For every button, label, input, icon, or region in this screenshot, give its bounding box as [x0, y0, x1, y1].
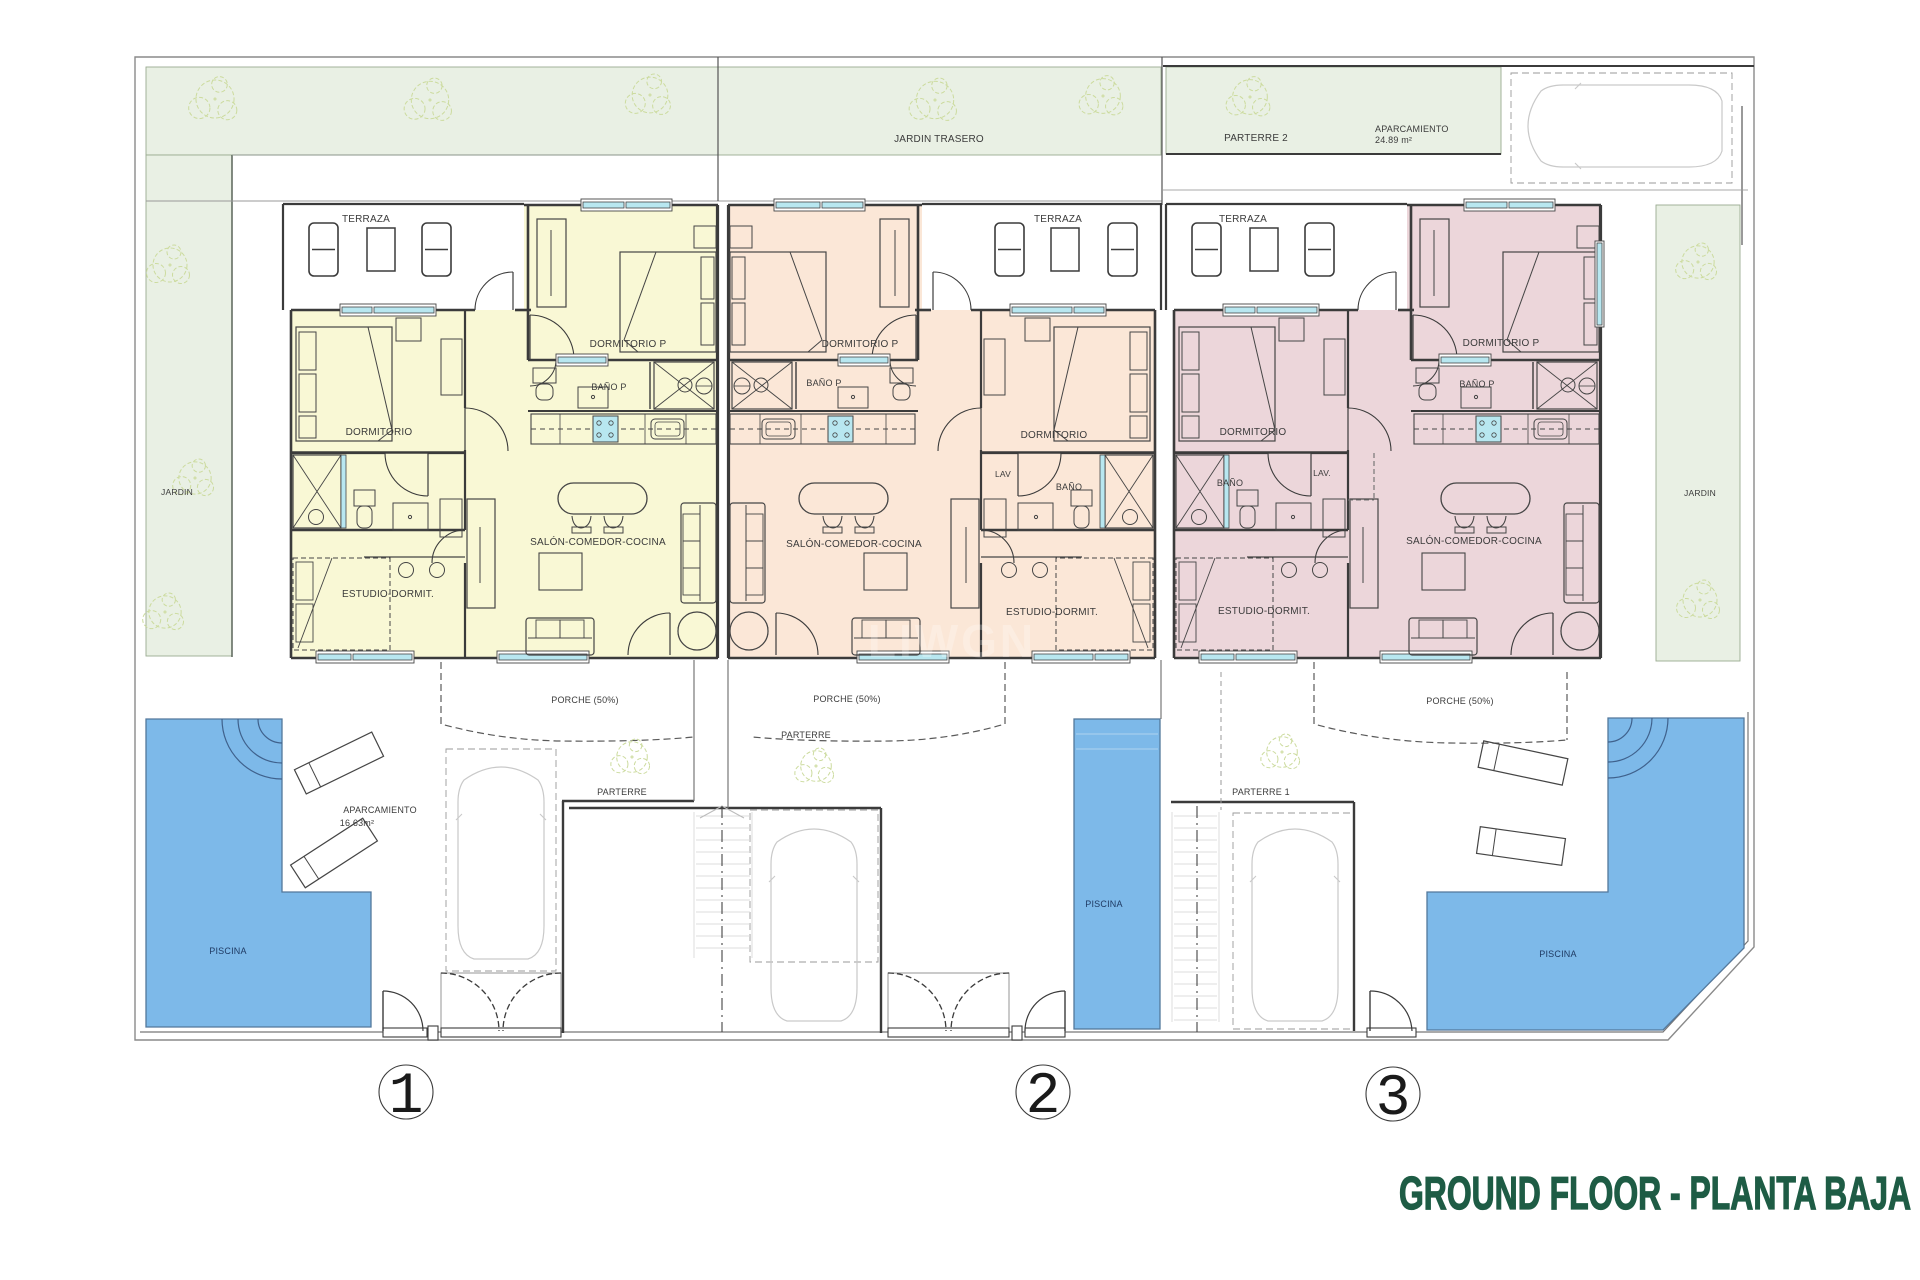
svg-text:TERRAZA: TERRAZA	[1219, 214, 1267, 225]
svg-text:BAÑO P: BAÑO P	[591, 382, 626, 392]
svg-text:BAÑO P: BAÑO P	[806, 378, 841, 388]
svg-text:PISCINA: PISCINA	[1085, 899, 1122, 909]
svg-text:LAV.: LAV.	[1313, 468, 1331, 478]
svg-text:ESTUDIO-DORMIT.: ESTUDIO-DORMIT.	[1218, 606, 1310, 617]
svg-text:ESTUDIO-DORMIT.: ESTUDIO-DORMIT.	[342, 589, 434, 600]
svg-text:PISCINA: PISCINA	[209, 946, 246, 956]
svg-text:PARTERRE: PARTERRE	[597, 787, 647, 797]
svg-text:PORCHE (50%): PORCHE (50%)	[1426, 696, 1493, 706]
svg-text:DORMITORIO: DORMITORIO	[1220, 427, 1287, 438]
svg-text:DORMITORIO: DORMITORIO	[346, 427, 413, 438]
svg-text:TERRAZA: TERRAZA	[342, 214, 390, 225]
svg-text:2: 2	[1026, 1065, 1061, 1130]
svg-text:LAV: LAV	[995, 469, 1011, 479]
svg-text:DORMITORIO P: DORMITORIO P	[1463, 338, 1540, 349]
svg-text:SALÓN-COMEDOR-COCINA: SALÓN-COMEDOR-COCINA	[530, 535, 666, 548]
svg-text:DORMITORIO: DORMITORIO	[1021, 430, 1088, 441]
svg-text:DORMITORIO P: DORMITORIO P	[590, 339, 667, 350]
svg-text:JARDIN TRASERO: JARDIN TRASERO	[894, 134, 984, 145]
svg-text:SALÓN-COMEDOR-COCINA: SALÓN-COMEDOR-COCINA	[1406, 534, 1542, 547]
svg-text:1: 1	[389, 1065, 424, 1130]
svg-text:16.63m²: 16.63m²	[340, 818, 374, 828]
svg-text:PARTERRE 1: PARTERRE 1	[1232, 787, 1290, 797]
svg-text:3: 3	[1376, 1067, 1411, 1132]
svg-text:24.89 m²: 24.89 m²	[1375, 135, 1412, 145]
svg-text:BAÑO P: BAÑO P	[1459, 379, 1494, 389]
svg-text:PORCHE (50%): PORCHE (50%)	[551, 695, 618, 705]
svg-text:BAÑO: BAÑO	[1056, 482, 1082, 492]
svg-text:LIWGN: LIWGN	[868, 615, 1036, 667]
svg-text:PORCHE (50%): PORCHE (50%)	[813, 694, 880, 704]
svg-text:TERRAZA: TERRAZA	[1034, 214, 1082, 225]
svg-text:PISCINA: PISCINA	[1539, 949, 1576, 959]
svg-text:BAÑO: BAÑO	[1217, 478, 1243, 488]
svg-text:SALÓN-COMEDOR-COCINA: SALÓN-COMEDOR-COCINA	[786, 537, 922, 550]
svg-text:APARCAMIENTO: APARCAMIENTO	[343, 805, 417, 815]
svg-text:JARDIN: JARDIN	[161, 487, 193, 497]
svg-text:DORMITORIO P: DORMITORIO P	[822, 339, 899, 350]
svg-text:GROUND FLOOR - PLANTA BAJA: GROUND FLOOR - PLANTA BAJA	[1399, 1167, 1911, 1219]
svg-text:PARTERRE: PARTERRE	[781, 730, 831, 740]
svg-text:APARCAMIENTO: APARCAMIENTO	[1375, 124, 1449, 134]
svg-text:PARTERRE 2: PARTERRE 2	[1224, 133, 1288, 144]
svg-text:JARDIN: JARDIN	[1684, 488, 1716, 498]
